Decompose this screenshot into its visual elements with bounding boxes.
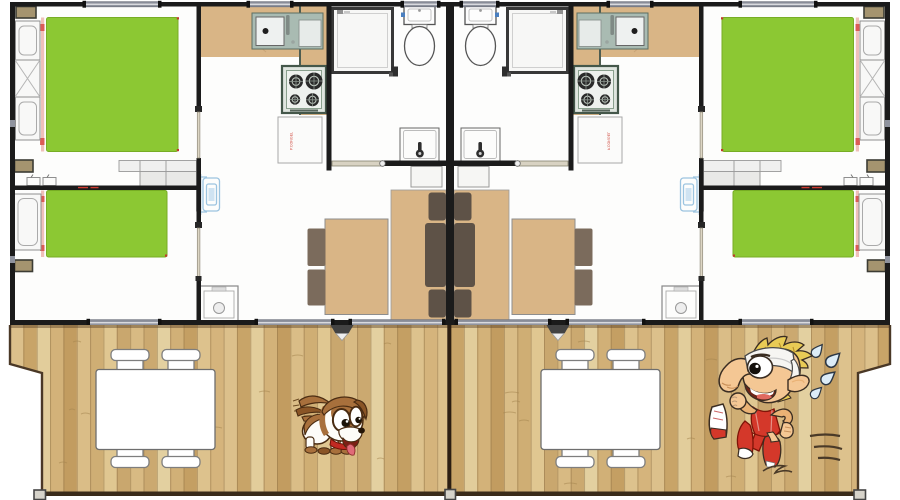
svg-text:P.CONGEL: P.CONGEL — [290, 132, 294, 150]
svg-text:P.CONGEL: P.CONGEL — [607, 132, 611, 150]
